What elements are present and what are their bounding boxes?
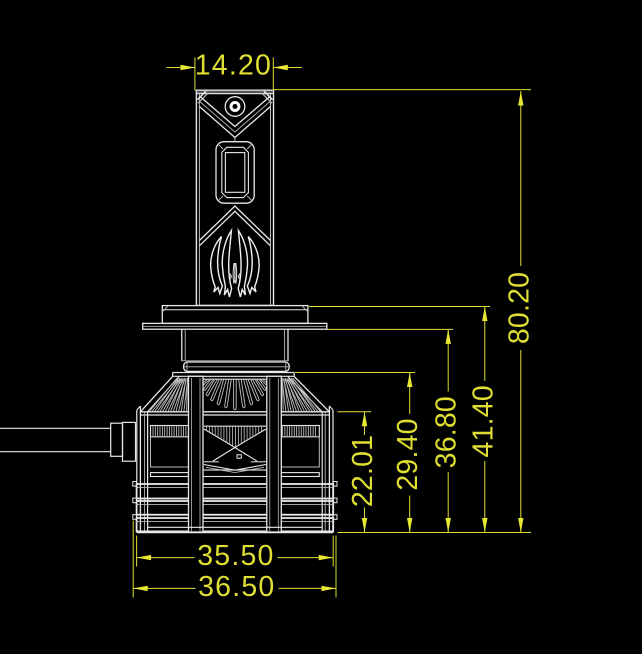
svg-text:22.01: 22.01 [347, 435, 379, 507]
svg-text:41.40: 41.40 [467, 385, 499, 457]
svg-text:36.50: 36.50 [198, 571, 275, 603]
svg-text:80.20: 80.20 [503, 272, 535, 344]
svg-text:29.40: 29.40 [392, 418, 424, 490]
svg-text:14.20: 14.20 [195, 50, 272, 82]
svg-text:35.50: 35.50 [197, 540, 274, 572]
svg-text:36.80: 36.80 [431, 396, 463, 468]
